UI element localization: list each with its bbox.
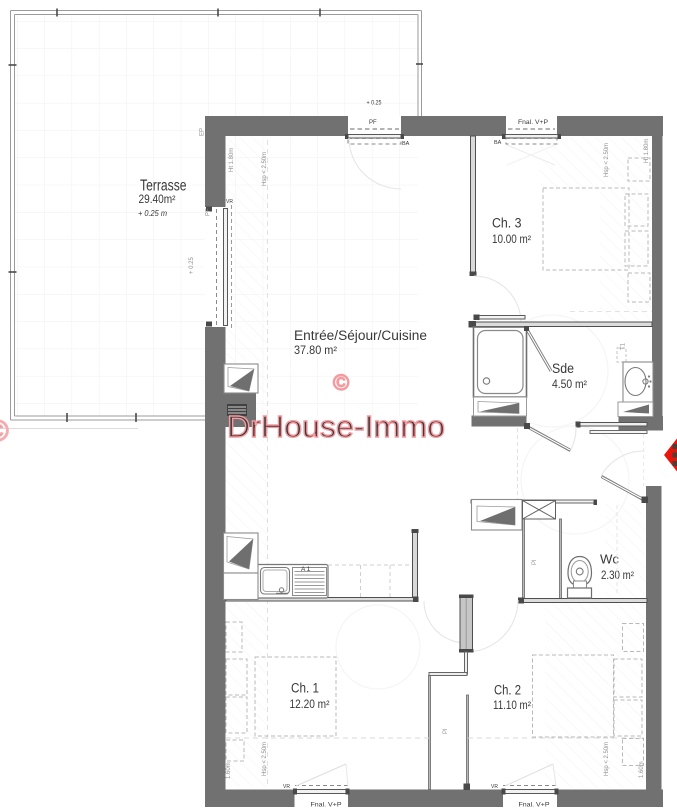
svg-text:Ht 1.80m: Ht 1.80m: [229, 148, 235, 172]
svg-text:Entrée/Séjour/Cuisine: Entrée/Séjour/Cuisine: [294, 328, 427, 343]
svg-text:Pl: Pl: [532, 560, 538, 565]
svg-text:Ch. 3: Ch. 3: [492, 216, 522, 231]
svg-text:Ch. 2: Ch. 2: [494, 683, 521, 698]
svg-text:Sde: Sde: [552, 361, 574, 376]
svg-text:©: ©: [333, 370, 349, 395]
svg-text:+ 0.25: + 0.25: [189, 256, 195, 274]
svg-text:©: ©: [0, 415, 9, 448]
svg-text:Ht 1.80m: Ht 1.80m: [644, 139, 650, 163]
svg-text:Ch. 1: Ch. 1: [291, 681, 319, 696]
svg-text:A 1: A 1: [301, 566, 311, 573]
svg-text:37.80 m²: 37.80 m²: [294, 345, 337, 357]
svg-text:Hsp < 2.50m: Hsp < 2.50m: [604, 742, 610, 776]
svg-text:Fnal. V+P: Fnal. V+P: [519, 803, 550, 809]
svg-text:29.40m²: 29.40m²: [139, 194, 176, 206]
svg-text:Hsp < 2.50m: Hsp < 2.50m: [604, 143, 610, 177]
svg-text:Hsp < 2.50m: Hsp < 2.50m: [262, 742, 268, 776]
svg-text:DrHouse-Immo: DrHouse-Immo: [227, 409, 445, 444]
svg-text:Fnal. V+P: Fnal. V+P: [518, 120, 548, 126]
svg-text:1.60m: 1.60m: [226, 762, 232, 779]
svg-text:T1: T1: [621, 342, 627, 350]
svg-text:2.30 m²: 2.30 m²: [601, 570, 634, 582]
svg-text:+ 0.25: + 0.25: [367, 100, 382, 107]
svg-text:EP: EP: [200, 128, 206, 136]
svg-text:12.20 m²: 12.20 m²: [290, 699, 330, 711]
svg-text:PF: PF: [206, 208, 212, 216]
svg-text:10.00 m²: 10.00 m²: [492, 234, 531, 246]
svg-text:VR: VR: [283, 784, 290, 790]
svg-text:Fnal. V+P: Fnal. V+P: [311, 803, 342, 809]
svg-text:4.50 m²: 4.50 m²: [552, 379, 587, 391]
svg-text:BA: BA: [402, 141, 410, 147]
svg-text:VR: VR: [226, 199, 233, 205]
svg-text:Terrasse: Terrasse: [140, 178, 187, 195]
svg-text:1.60m: 1.60m: [639, 761, 645, 778]
svg-text:PF: PF: [369, 120, 377, 126]
svg-text:Pl: Pl: [443, 729, 449, 734]
svg-text:11.10 m²: 11.10 m²: [493, 700, 531, 712]
svg-text:+ 0.25 m: + 0.25 m: [138, 208, 167, 218]
svg-text:BA: BA: [494, 140, 502, 146]
svg-text:VR: VR: [491, 784, 498, 790]
svg-text:Hsp < 2.50m: Hsp < 2.50m: [262, 152, 268, 186]
